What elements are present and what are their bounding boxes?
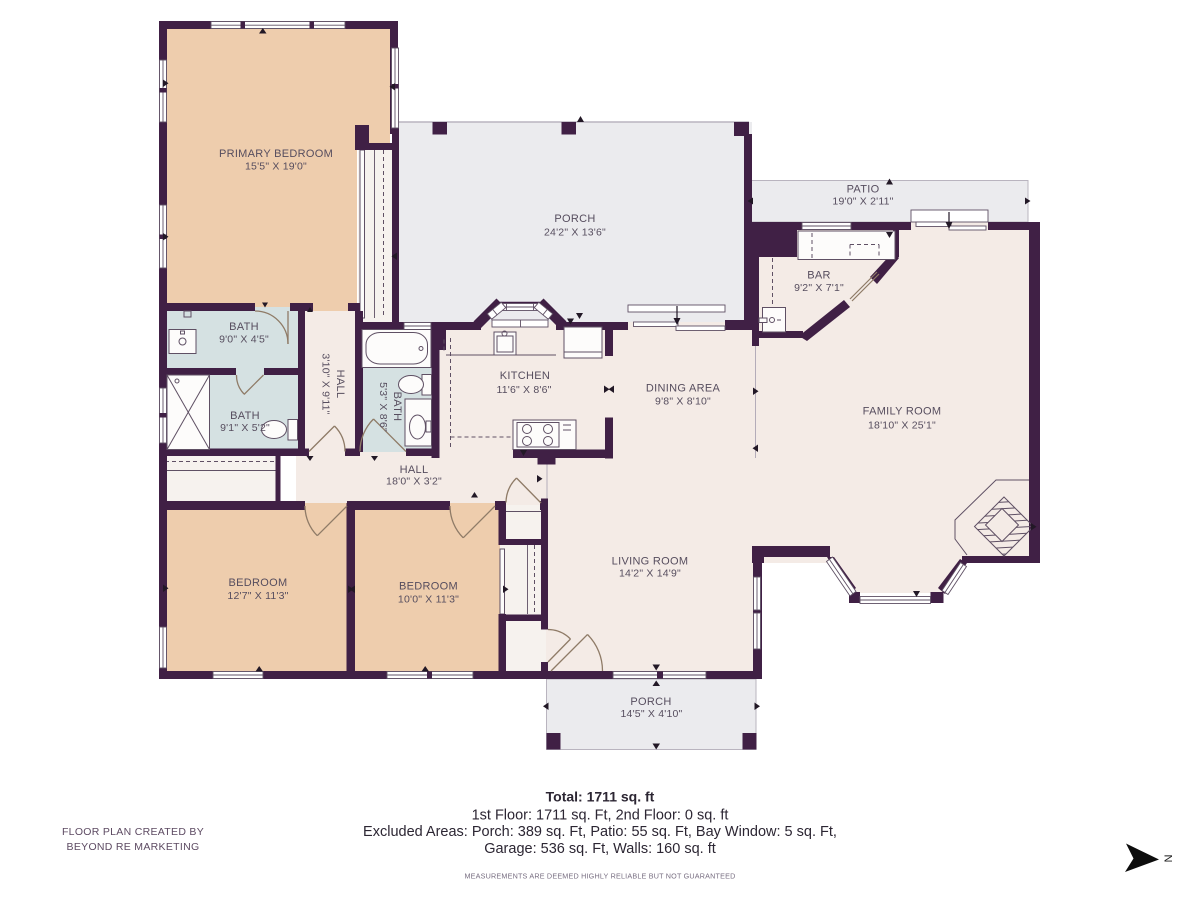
svg-text:14'2" X 14'9": 14'2" X 14'9" [619, 568, 681, 580]
svg-text:BEYOND RE MARKETING: BEYOND RE MARKETING [67, 841, 200, 853]
svg-text:PORCH: PORCH [630, 696, 671, 708]
svg-text:BATH: BATH [229, 321, 259, 333]
svg-text:18'10" X 25'1": 18'10" X 25'1" [868, 420, 936, 432]
svg-text:Excluded Areas: Porch: 389 sq.: Excluded Areas: Porch: 389 sq. Ft, Patio… [363, 824, 837, 840]
svg-text:BAR: BAR [807, 270, 831, 282]
svg-text:11'6" X 8'6": 11'6" X 8'6" [496, 384, 551, 396]
svg-text:FLOOR PLAN CREATED BY: FLOOR PLAN CREATED BY [62, 826, 204, 838]
svg-text:1st Floor: 1711 sq. Ft, 2nd Fl: 1st Floor: 1711 sq. Ft, 2nd Floor: 0 sq.… [472, 808, 729, 824]
svg-text:HALL: HALL [334, 370, 346, 399]
svg-text:BATH: BATH [391, 392, 403, 422]
svg-text:N: N [1162, 855, 1174, 863]
svg-text:9'0" X 4'5": 9'0" X 4'5" [219, 334, 269, 346]
svg-text:BEDROOM: BEDROOM [229, 577, 288, 589]
svg-text:18'0" X 3'2": 18'0" X 3'2" [386, 476, 442, 488]
svg-text:BATH: BATH [230, 410, 260, 422]
svg-text:HALL: HALL [400, 464, 429, 476]
svg-text:FAMILY ROOM: FAMILY ROOM [863, 406, 942, 418]
svg-text:Total: 1711 sq. ft: Total: 1711 sq. ft [546, 789, 655, 805]
svg-text:LIVING ROOM: LIVING ROOM [612, 556, 689, 568]
svg-text:9'2" X 7'1": 9'2" X 7'1" [794, 282, 844, 294]
svg-text:MEASUREMENTS ARE DEEMED HIGHLY: MEASUREMENTS ARE DEEMED HIGHLY RELIABLE … [464, 872, 735, 881]
svg-text:3'10" X 9'11": 3'10" X 9'11" [320, 353, 332, 414]
svg-text:PATIO: PATIO [847, 184, 880, 196]
svg-text:14'5" X 4'10": 14'5" X 4'10" [621, 708, 683, 720]
svg-text:19'0" X 2'11": 19'0" X 2'11" [832, 196, 893, 208]
svg-text:PORCH: PORCH [554, 213, 595, 225]
svg-text:12'7" X 11'3": 12'7" X 11'3" [227, 590, 288, 602]
svg-text:PRIMARY BEDROOM: PRIMARY BEDROOM [219, 148, 333, 160]
svg-text:10'0" X 11'3": 10'0" X 11'3" [398, 594, 459, 606]
svg-text:24'2" X 13'6": 24'2" X 13'6" [544, 227, 606, 239]
svg-text:BEDROOM: BEDROOM [399, 581, 458, 593]
svg-text:KITCHEN: KITCHEN [500, 370, 550, 382]
svg-text:DINING AREA: DINING AREA [646, 383, 721, 395]
svg-text:9'1" X 5'2": 9'1" X 5'2" [220, 422, 270, 434]
svg-text:Garage: 536 sq. Ft, Walls: 160: Garage: 536 sq. Ft, Walls: 160 sq. ft [484, 841, 716, 857]
svg-text:9'8" X 8'10": 9'8" X 8'10" [655, 396, 711, 408]
svg-text:15'5" X 19'0": 15'5" X 19'0" [245, 161, 307, 173]
svg-text:5'3" X 8'6": 5'3" X 8'6" [377, 382, 389, 432]
